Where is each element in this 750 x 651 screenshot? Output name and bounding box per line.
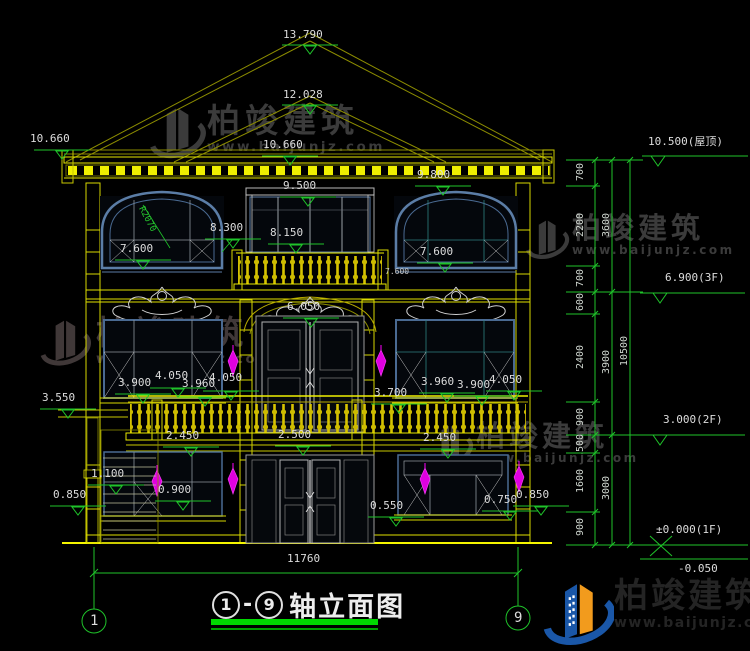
dim-700a: 700 [576, 150, 586, 194]
elev-label-2450-right: 2.450 [423, 432, 456, 443]
elev-label-1100: 1.100 [91, 468, 124, 479]
door-1f [246, 455, 374, 543]
dim-2200: 2200 [576, 203, 586, 247]
elev-label-7600-small: 7.600 [385, 268, 409, 276]
wall-lamp-icon [376, 345, 386, 376]
dim-2400: 2400 [576, 335, 586, 379]
elev-label-8300: 8.300 [210, 222, 243, 233]
building-elevation-svg [0, 0, 750, 651]
level-1f: ±0.000(1F) [656, 524, 722, 535]
elev-label-3900-right: 3.900 [457, 379, 490, 390]
elev-label-4050-right: 4.050 [489, 374, 522, 385]
elev-label-4050-left2: 4.050 [209, 372, 242, 383]
brand-footer-url: www.baijunjz.com [614, 615, 750, 631]
elev-label-2450-left: 2.450 [166, 430, 199, 441]
elev-label-peak: 13.790 [283, 29, 323, 40]
elev-label-0750: 0.750 [484, 494, 517, 505]
elev-label-3960-right: 3.960 [421, 376, 454, 387]
title-axis-start: 1 [212, 591, 240, 619]
level-3f: 6.900(3F) [665, 272, 725, 283]
ornament-scroll-left [113, 287, 211, 322]
dim-3900: 3900 [602, 340, 612, 384]
elev-label-8150: 8.150 [270, 227, 303, 238]
elev-label-eave-center: 10.660 [263, 139, 303, 150]
level-2f: 3.000(2F) [663, 414, 723, 425]
elev-label-3550: 3.550 [42, 392, 75, 403]
right-dimension-chain [566, 156, 748, 559]
elev-label-3900-left: 3.900 [118, 377, 151, 388]
elev-label-6050: 6.050 [287, 301, 320, 312]
brand-footer: 柏竣建筑 www.baijunjz.com [540, 572, 750, 650]
dim-3000: 3000 [602, 466, 612, 510]
elev-label-9800: 9.800 [417, 169, 450, 180]
elev-label-0850-left: 0.850 [53, 489, 86, 500]
title-underline-thin [211, 628, 378, 630]
level-roof: 10.500(屋顶) [648, 136, 723, 147]
axis-bubble-1: 1 [90, 614, 98, 628]
brand-footer-name: 柏竣建筑 [614, 578, 750, 615]
dim-1600: 1600 [576, 459, 586, 503]
window-3f-right [394, 192, 518, 272]
brand-footer-text: 柏竣建筑 www.baijunjz.com [614, 578, 750, 631]
dim-900b: 900 [576, 505, 586, 549]
elev-label-9500: 9.500 [283, 180, 316, 191]
balcony-2f [58, 396, 530, 451]
dim-600: 600 [576, 280, 586, 324]
title-dash: - [243, 592, 252, 617]
ornament-scroll-right [407, 287, 505, 322]
elev-label-eave-left: 10.660 [30, 133, 70, 144]
brand-logo-icon [540, 576, 614, 648]
elev-label-0850-right: 0.850 [516, 489, 549, 500]
axis-bubble-9: 9 [514, 611, 522, 625]
wall-lamp-icon [228, 463, 238, 494]
elev-label-0900: 0.900 [158, 484, 191, 495]
elev-label-ridge: 12.028 [283, 89, 323, 100]
window-1f-right [394, 455, 512, 520]
elev-label-7600-left: 7.600 [120, 243, 153, 254]
overall-width-dimension: 11760 [287, 553, 320, 564]
title-underline [211, 619, 378, 625]
title-axis-end: 9 [255, 591, 283, 619]
dim-3600: 3600 [602, 203, 612, 247]
cad-elevation-drawing: 柏竣建筑 www.baijunjz.com 柏竣建筑 www.baijunjz.… [0, 0, 750, 651]
dim-10500: 10500 [620, 329, 630, 373]
balcony-3f [232, 250, 388, 290]
elev-label-3700: 3.700 [374, 387, 407, 398]
elev-label-2500: 2.500 [278, 429, 311, 440]
elev-label-7600-right: 7.600 [420, 246, 453, 257]
elev-label-0550: 0.550 [370, 500, 403, 511]
